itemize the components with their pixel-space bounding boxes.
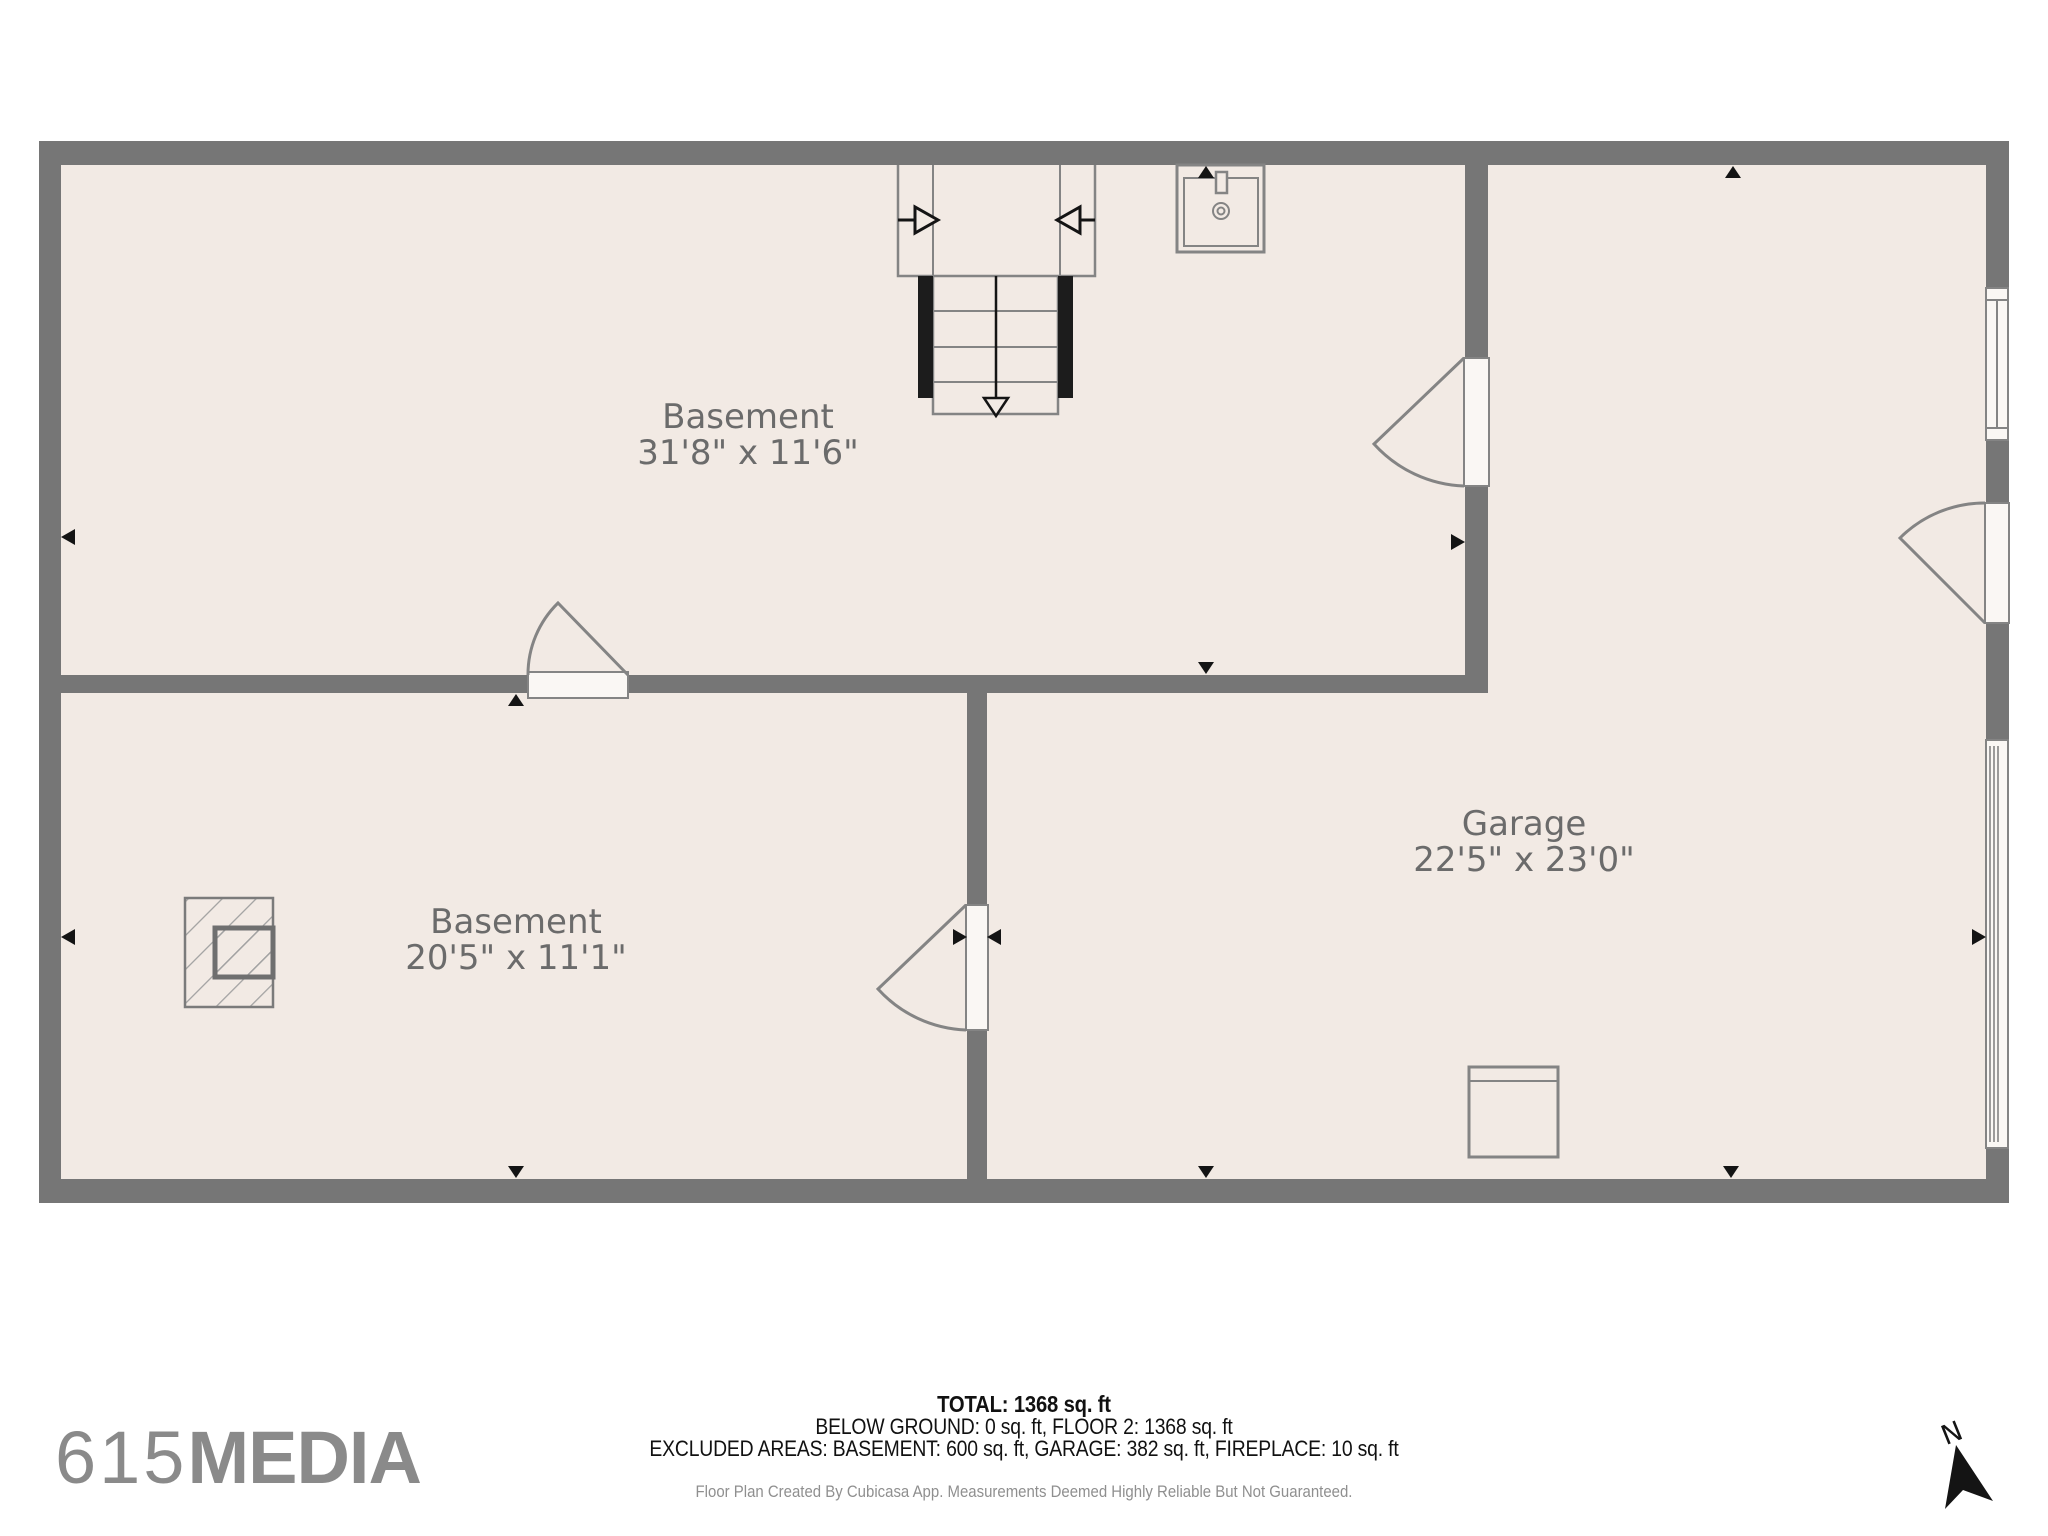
stair-rail-left — [918, 276, 933, 398]
logo-suffix: MEDIA — [187, 1416, 420, 1499]
room-label-basement-upper-dims: 31'8" x 11'6" — [637, 433, 859, 473]
room-label-garage-dims: 22'5" x 23'0" — [1413, 840, 1635, 880]
room-label-basement-lower-dims: 20'5" x 11'1" — [405, 938, 627, 978]
stair-rail-right — [1058, 276, 1073, 398]
window-icon — [1986, 288, 2008, 440]
total-area-text: TOTAL: 1368 sq. ft — [123, 1392, 1925, 1416]
floor-area — [61, 165, 1986, 1179]
room-label-basement-upper-name: Basement — [662, 397, 834, 437]
brand-logo: 615MEDIA — [55, 1421, 421, 1495]
garage-door-icon — [1986, 740, 2008, 1148]
north-label: N — [1937, 1416, 1967, 1452]
north-compass: N — [1937, 1416, 1993, 1509]
floor-plan-page: Basement 31'8" x 11'6" Basement 20'5" x … — [0, 0, 2048, 1536]
floor-plan-drawing: Basement 31'8" x 11'6" Basement 20'5" x … — [0, 0, 2048, 1536]
room-label-garage-name: Garage — [1462, 804, 1587, 844]
logo-prefix: 615 — [55, 1416, 187, 1499]
room-label-basement-lower-name: Basement — [430, 902, 602, 942]
north-arrow-icon — [1945, 1445, 1993, 1509]
fireplace-icon — [185, 898, 273, 1007]
